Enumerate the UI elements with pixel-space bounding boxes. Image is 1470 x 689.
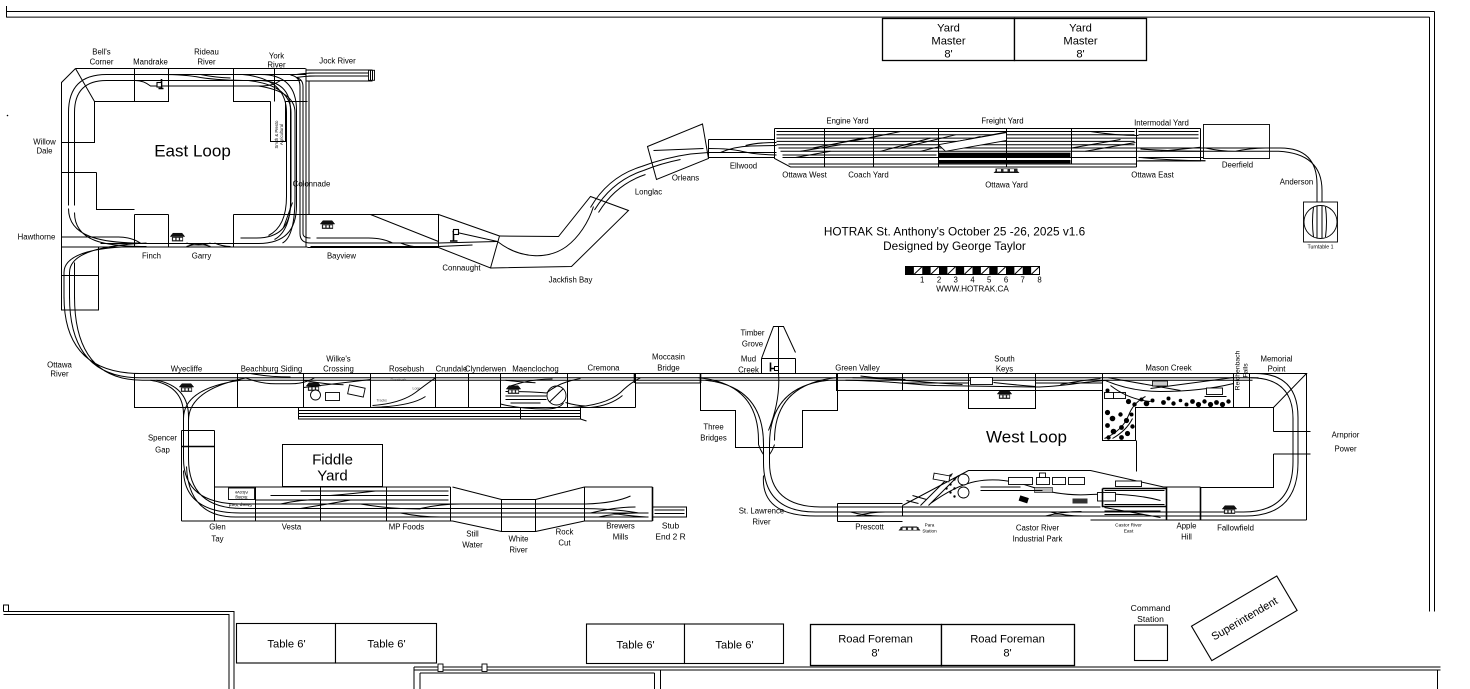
svg-text:Bridges: Bridges [700,434,727,443]
svg-text:Ottawa: Ottawa [47,361,72,370]
svg-text:Alcove: Alcove [234,490,248,495]
svg-text:Mandrake: Mandrake [133,58,168,67]
svg-text:Reichenbach: Reichenbach [1235,350,1242,390]
svg-text:Garry: Garry [192,252,212,261]
svg-text:Agricultural: Agricultural [279,124,284,145]
svg-text:Wyecliffe: Wyecliffe [171,365,202,374]
svg-text:River: River [752,518,771,527]
svg-text:St. Lawrence: St. Lawrence [739,507,785,516]
svg-text:Siding: Siding [235,495,248,500]
svg-text:Ottawa East: Ottawa East [1131,171,1174,180]
svg-text:End 2 R: End 2 R [655,532,685,542]
svg-text:Table 6': Table 6' [715,640,753,652]
svg-text:Ottawa West: Ottawa West [782,171,827,180]
svg-text:Fiddle: Fiddle [312,452,353,469]
svg-text:Table 6': Table 6' [367,639,405,651]
svg-text:Intermodal Yard: Intermodal Yard [1134,119,1189,128]
svg-text:Longlac: Longlac [635,188,662,197]
svg-text:Grove: Grove [742,340,763,349]
svg-text:Mills: Mills [613,533,629,542]
svg-text:York: York [269,52,284,61]
svg-text:Still: Still [466,530,479,539]
svg-text:Station: Station [1137,614,1164,624]
svg-text:Point: Point [1268,365,1287,374]
svg-text:Crossing: Crossing [323,365,354,374]
svg-text:Cremona: Cremona [587,364,620,373]
svg-text:White: White [509,535,529,544]
svg-text:Road Foreman: Road Foreman [970,634,1045,646]
svg-text:Willow: Willow [33,138,56,147]
svg-text:Station: Station [922,529,937,534]
svg-text:Fallowfield: Fallowfield [1217,524,1254,533]
svg-text:Rock: Rock [556,528,574,537]
svg-text:8: 8 [1037,276,1041,285]
svg-text:Yard: Yard [937,23,960,35]
svg-text:Stub: Stub [662,521,680,531]
svg-text:Bridge: Bridge [657,364,680,373]
svg-text:Turntable 1: Turntable 1 [1307,245,1333,251]
svg-text:Yard: Yard [317,468,348,485]
svg-text:6: 6 [1004,276,1008,285]
svg-text:River: River [197,58,216,67]
svg-text:Arnprior: Arnprior [1332,431,1360,440]
svg-text:7: 7 [1021,276,1025,285]
svg-text:Apple: Apple [1177,522,1197,531]
svg-text:Moccasin: Moccasin [652,353,685,362]
svg-text:Wilke's: Wilke's [326,355,351,364]
svg-text:5: 5 [987,276,992,285]
svg-text:River: River [50,370,69,379]
svg-text:Creek: Creek [738,366,759,375]
svg-text:Mud: Mud [741,355,756,364]
svg-text:Deerfield: Deerfield [1222,161,1253,170]
svg-text:Master: Master [1063,36,1097,48]
svg-text:East Loop: East Loop [154,142,231,161]
svg-text:Anderson: Anderson [1280,178,1313,187]
svg-text:Keys: Keys [996,365,1013,374]
svg-text:Maenclochog: Maenclochog [512,365,558,374]
svg-text:Finch: Finch [142,252,161,261]
svg-text:Three: Three [703,423,723,432]
svg-text:MP Foods: MP Foods [389,523,424,532]
svg-text:WWW.HOTRAK.CA: WWW.HOTRAK.CA [936,285,1009,294]
svg-text:Table 6': Table 6' [267,639,305,651]
svg-text:Beachburg Siding: Beachburg Siding [241,365,303,374]
svg-text:Para: Para [925,523,935,528]
svg-text:Mason Creek: Mason Creek [1145,364,1191,373]
svg-text:Rideau: Rideau [194,48,219,57]
svg-text:Corner: Corner [90,58,114,67]
svg-text:Green Valley: Green Valley [835,364,880,373]
svg-text:Coach Yard: Coach Yard [848,171,888,180]
svg-text:8': 8' [871,648,879,660]
svg-text:Spencer: Spencer [148,434,177,443]
svg-text:Bell's: Bell's [92,48,110,57]
svg-text:Rosebush: Rosebush [391,378,407,382]
svg-text:Castor River: Castor River [1016,524,1060,533]
svg-text:Colonnade: Colonnade [293,180,331,189]
svg-text:River: River [509,546,528,555]
svg-text:Designed by George Taylor: Designed by George Taylor [883,239,1026,253]
svg-text:Tay: Tay [211,535,223,544]
svg-text:Connaught: Connaught [442,264,481,273]
svg-text:Timber: Timber [741,329,765,338]
svg-text:8': 8' [1076,49,1084,61]
svg-text:Dale: Dale [36,147,52,156]
svg-text:Freight Yard: Freight Yard [981,117,1023,126]
svg-text:Jock River: Jock River [319,57,356,66]
svg-text:Tracks: Tracks [377,399,388,403]
svg-text:Command: Command [1131,603,1171,613]
svg-text:HOTRAK St. Anthony's October 2: HOTRAK St. Anthony's October 25 -26, 202… [824,225,1086,239]
svg-text:Crundale: Crundale [436,365,468,374]
svg-text:8': 8' [1003,648,1011,660]
svg-text:South: South [994,355,1014,364]
svg-text:Castor River: Castor River [1115,523,1142,529]
svg-text:Yard: Yard [1069,23,1092,35]
svg-text:1: 1 [920,276,924,285]
svg-text:Power: Power [1334,445,1357,454]
svg-text:River: River [267,61,286,70]
svg-text:West Loop: West Loop [986,428,1067,447]
svg-text:4: 4 [970,276,975,285]
svg-text:Hawthorne: Hawthorne [18,233,56,242]
svg-text:Clynderwen: Clynderwen [465,365,506,374]
svg-text:Ottawa Yard: Ottawa Yard [985,181,1028,190]
svg-text:Gap: Gap [155,446,170,455]
svg-text:Falls: Falls [1243,363,1250,378]
svg-text:Orleans: Orleans [672,174,699,183]
svg-text:Cut: Cut [558,539,571,548]
svg-text:Vesta: Vesta [282,523,302,532]
svg-text:Engine Yard: Engine Yard [826,117,868,126]
svg-text:2: 2 [937,276,941,285]
svg-text:Master: Master [931,36,965,48]
svg-text:Rosebush: Rosebush [389,365,424,374]
svg-text:Prescott: Prescott [855,523,884,532]
svg-text:Glen: Glen [209,523,225,532]
svg-text:Road Foreman: Road Foreman [838,634,913,646]
svg-text:Ellwood: Ellwood [730,162,757,171]
svg-text:Water: Water [462,541,483,550]
svg-text:Industrial Park: Industrial Park [1013,535,1063,544]
svg-text:3: 3 [954,276,958,285]
svg-text:Hill: Hill [1181,533,1192,542]
svg-text:Memorial: Memorial [1260,355,1292,364]
svg-text:Table 6': Table 6' [616,640,654,652]
svg-text:Jackfish Bay: Jackfish Bay [549,276,593,285]
svg-text:8': 8' [944,49,952,61]
svg-text:Bayview: Bayview [327,252,356,261]
svg-text:East: East [1124,529,1134,535]
svg-text:Brewers: Brewers [606,522,635,531]
